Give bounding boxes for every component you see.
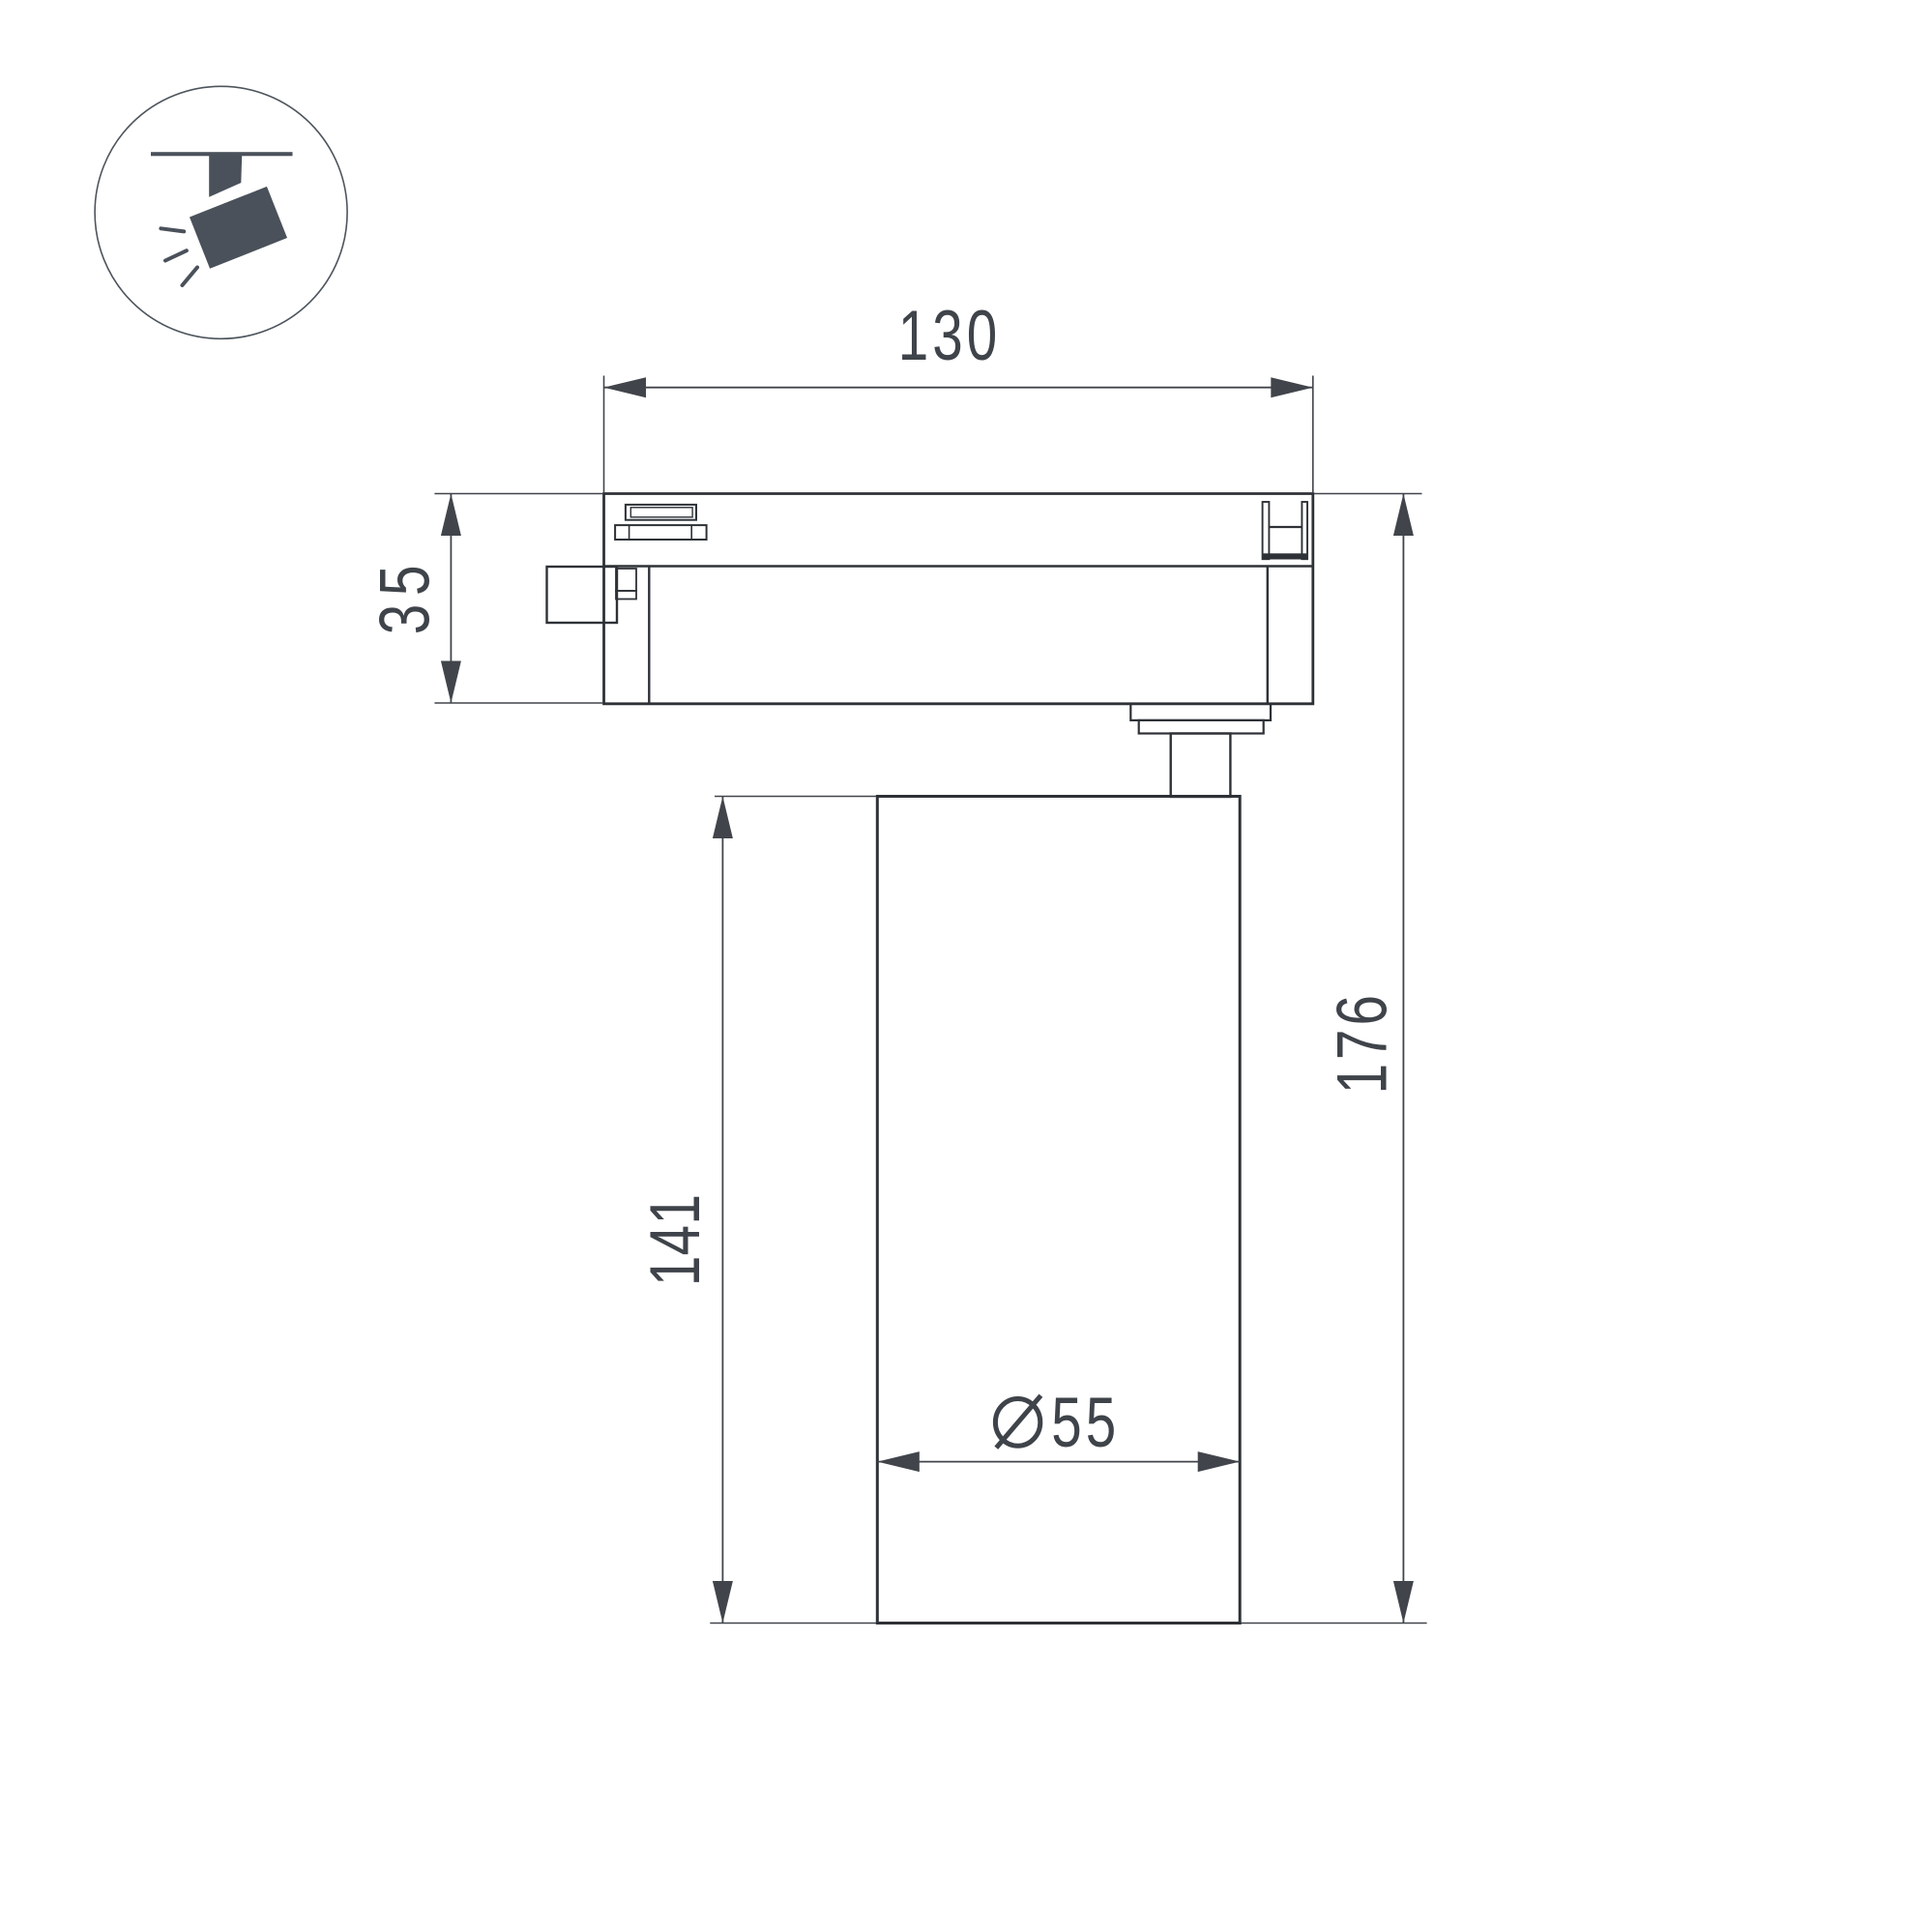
- svg-text:141: 141: [635, 1194, 715, 1287]
- svg-text:35: 35: [366, 557, 445, 635]
- svg-text:130: 130: [898, 296, 1001, 375]
- svg-text:176: 176: [1322, 991, 1401, 1094]
- svg-text:55: 55: [1051, 1383, 1120, 1462]
